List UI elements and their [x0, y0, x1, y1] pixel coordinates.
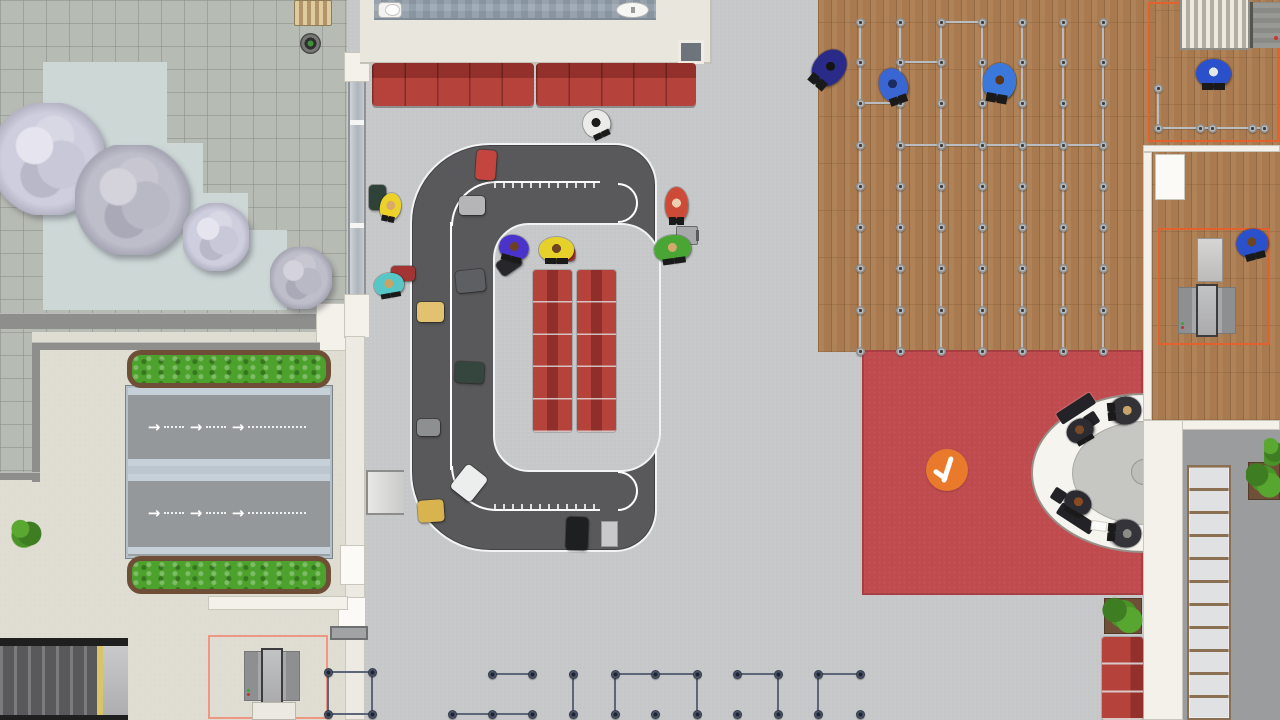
- queue-post: [937, 347, 946, 356]
- queue-post: [1099, 99, 1108, 108]
- wall-right-mid: [1143, 152, 1152, 420]
- queue-post: [1059, 347, 1068, 356]
- scanner-table[interactable]: [252, 702, 296, 720]
- walkway-arrow-icon: →: [188, 419, 204, 435]
- seat-column-bottomright[interactable]: [1102, 637, 1143, 720]
- carousel-seam-bottom: [494, 504, 600, 511]
- queue-post-dark: [528, 710, 537, 719]
- moving-walkway-divider: [128, 466, 330, 474]
- seat-column[interactable]: [577, 270, 616, 432]
- hedge-planter-north: [127, 350, 331, 388]
- queue-post: [937, 99, 946, 108]
- plaza-cobble-strip: [0, 332, 32, 480]
- pillar-right-large: [1143, 420, 1183, 720]
- queue-post: [1018, 223, 1027, 232]
- queue-rope: [818, 673, 860, 675]
- queue-post: [937, 264, 946, 273]
- queue-post: [1099, 264, 1108, 273]
- seat-row[interactable]: [372, 63, 534, 106]
- queue-rope: [328, 671, 372, 673]
- bush: [1264, 430, 1280, 470]
- queue-post: [1059, 18, 1068, 27]
- queue-post: [1196, 124, 1205, 133]
- walkway-dots: [248, 512, 306, 515]
- queue-post: [1059, 58, 1068, 67]
- wall-security-north: [33, 342, 320, 350]
- queue-rope: [900, 144, 1103, 146]
- suitcase[interactable]: [454, 361, 484, 383]
- queue-post: [1018, 182, 1027, 191]
- queue-post-dark: [856, 710, 865, 719]
- queue-post: [1018, 18, 1027, 27]
- queue-post: [1099, 306, 1108, 315]
- queue-post: [1018, 99, 1027, 108]
- queue-post-dark: [488, 670, 497, 679]
- queue-post: [937, 223, 946, 232]
- queue-post-dark: [774, 670, 783, 679]
- trash-can[interactable]: [300, 33, 321, 54]
- queue-rope: [737, 673, 778, 675]
- bench[interactable]: [294, 0, 332, 26]
- queue-post: [1059, 306, 1068, 315]
- queue-post-dark: [733, 710, 742, 719]
- tree: [183, 203, 249, 271]
- wood-floor-main: [818, 0, 1155, 352]
- queue-post-dark: [693, 670, 702, 679]
- queue-post: [978, 264, 987, 273]
- queue-post: [1059, 264, 1068, 273]
- suitcase[interactable]: [459, 196, 485, 215]
- sink[interactable]: [616, 2, 649, 18]
- scanner-table[interactable]: [1197, 238, 1223, 282]
- queue-post-dark: [611, 710, 620, 719]
- queue-post: [1099, 223, 1108, 232]
- queue-post: [1018, 58, 1027, 67]
- desk-paper: [1090, 520, 1107, 532]
- queue-post: [978, 306, 987, 315]
- queue-post-dark: [814, 710, 823, 719]
- queue-post: [896, 264, 905, 273]
- queue-post: [1059, 99, 1068, 108]
- queue-post-dark: [814, 670, 823, 679]
- game-viewport: →→→→→→: [0, 0, 1280, 720]
- toilet[interactable]: [378, 2, 402, 18]
- queue-rope: [1157, 88, 1159, 128]
- suitcase[interactable]: [455, 269, 486, 294]
- queue-rope: [614, 674, 616, 714]
- queue-post: [1260, 124, 1269, 133]
- tree: [270, 247, 332, 309]
- queue-post: [1099, 347, 1108, 356]
- queue-post-dark: [569, 710, 578, 719]
- suitcase[interactable]: [565, 517, 588, 551]
- glass-partition: [1187, 465, 1231, 720]
- queue-post: [856, 223, 865, 232]
- security-scanner[interactable]: [1178, 287, 1236, 334]
- queue-rope: [328, 713, 372, 715]
- queue-post: [856, 99, 865, 108]
- restroom-floor: [374, 0, 656, 20]
- gray-desk[interactable]: [330, 626, 368, 640]
- queue-post: [1018, 141, 1027, 150]
- security-scanner[interactable]: [244, 651, 300, 701]
- walkway-dots: [164, 512, 184, 515]
- queue-rope: [777, 674, 779, 714]
- wall-plaza-south: [0, 313, 340, 329]
- wall-west-lower: [345, 336, 365, 720]
- queue-post: [1099, 18, 1108, 27]
- passenger[interactable]: [1196, 59, 1231, 87]
- queue-post: [896, 141, 905, 150]
- queue-post: [856, 306, 865, 315]
- belt-access-panel: [601, 521, 618, 547]
- walkway-dots: [206, 426, 226, 429]
- queue-post: [856, 58, 865, 67]
- queue-post-dark: [693, 710, 702, 719]
- walkway-dots: [206, 512, 226, 515]
- queue-rope: [941, 21, 982, 23]
- queue-post-dark: [448, 710, 457, 719]
- queue-post-dark: [774, 710, 783, 719]
- queue-post-dark: [651, 710, 660, 719]
- suitcase[interactable]: [417, 419, 440, 436]
- suitcase[interactable]: [417, 302, 444, 322]
- wall-security-west: [32, 342, 40, 482]
- seat-row[interactable]: [536, 63, 696, 106]
- walkway-dots: [248, 426, 306, 429]
- hedge-planter-south: [127, 556, 331, 594]
- wall-outdoor-end: [0, 472, 40, 480]
- queue-post: [978, 58, 987, 67]
- queue-post-dark: [611, 670, 620, 679]
- queue-post-dark: [324, 668, 333, 677]
- queue-post: [1099, 141, 1108, 150]
- passenger[interactable]: [665, 187, 688, 222]
- queue-post: [978, 141, 987, 150]
- queue-post-dark: [368, 710, 377, 719]
- walkway-arrow-icon: →: [146, 505, 162, 521]
- escalator-bottomleft[interactable]: [0, 638, 128, 720]
- tree: [75, 145, 189, 255]
- escalator-topright[interactable]: [1180, 0, 1250, 50]
- queue-post: [896, 223, 905, 232]
- queue-post: [1059, 223, 1068, 232]
- wall-right-band-upper: [1143, 145, 1280, 152]
- queue-post: [856, 18, 865, 27]
- walkway-arrow-icon: →: [188, 505, 204, 521]
- suitcase[interactable]: [475, 149, 497, 180]
- queue-rope: [492, 673, 532, 675]
- walkway-arrow-icon: →: [230, 419, 246, 435]
- west-facade-glass: [348, 76, 366, 300]
- queue-post: [978, 182, 987, 191]
- queue-post: [1018, 306, 1027, 315]
- seat-column[interactable]: [533, 270, 572, 432]
- queue-post: [1099, 182, 1108, 191]
- queue-post: [896, 18, 905, 27]
- bush: [6, 516, 42, 548]
- queue-post: [937, 141, 946, 150]
- queue-post: [896, 182, 905, 191]
- queue-post: [978, 223, 987, 232]
- queue-post: [937, 18, 946, 27]
- suitcase[interactable]: [417, 499, 444, 523]
- passenger[interactable]: [539, 237, 574, 262]
- door-west-upper[interactable]: [340, 545, 365, 585]
- queue-rope: [371, 672, 373, 714]
- queue-post: [896, 58, 905, 67]
- queue-post: [856, 182, 865, 191]
- queue-post: [856, 347, 865, 356]
- queue-post: [937, 58, 946, 67]
- queue-rope: [572, 674, 574, 714]
- queue-post-dark: [733, 670, 742, 679]
- walkway-arrow-icon: →: [146, 419, 162, 435]
- queue-post: [1208, 124, 1217, 133]
- escalator-belt-topright[interactable]: [1250, 2, 1280, 48]
- queue-post: [1099, 58, 1108, 67]
- queue-post: [978, 18, 987, 27]
- queue-post: [1059, 182, 1068, 191]
- queue-post: [896, 347, 905, 356]
- door-right-upper[interactable]: [1155, 154, 1185, 200]
- queue-post-dark: [569, 670, 578, 679]
- queue-post: [1059, 141, 1068, 150]
- queue-post: [1248, 124, 1257, 133]
- carousel-seam-left: [450, 222, 452, 470]
- planter: [1104, 598, 1142, 634]
- queue-post-dark: [324, 710, 333, 719]
- queue-rope: [817, 674, 819, 714]
- queue-post: [1154, 84, 1163, 93]
- airline-logo-icon: [926, 449, 968, 491]
- queue-post: [1154, 124, 1163, 133]
- wall-security-south: [208, 596, 348, 610]
- queue-post: [1018, 347, 1027, 356]
- queue-rope: [327, 672, 329, 714]
- queue-post: [1018, 264, 1027, 273]
- queue-rope: [900, 61, 941, 63]
- queue-post: [856, 264, 865, 273]
- queue-post-dark: [368, 668, 377, 677]
- queue-post: [978, 347, 987, 356]
- walkway-arrow-icon: →: [230, 505, 246, 521]
- queue-rope: [696, 674, 698, 714]
- queue-post-dark: [856, 670, 865, 679]
- baggage-feeder[interactable]: [366, 470, 404, 515]
- walkway-dots: [164, 426, 184, 429]
- queue-post-dark: [528, 670, 537, 679]
- queue-post-dark: [488, 710, 497, 719]
- queue-post: [896, 306, 905, 315]
- window-restroom: [678, 40, 704, 64]
- pillar-west-bottom: [344, 294, 370, 338]
- queue-post: [937, 306, 946, 315]
- queue-post: [937, 182, 946, 191]
- queue-post-dark: [651, 670, 660, 679]
- carousel-seam-top: [494, 181, 600, 188]
- queue-post: [856, 141, 865, 150]
